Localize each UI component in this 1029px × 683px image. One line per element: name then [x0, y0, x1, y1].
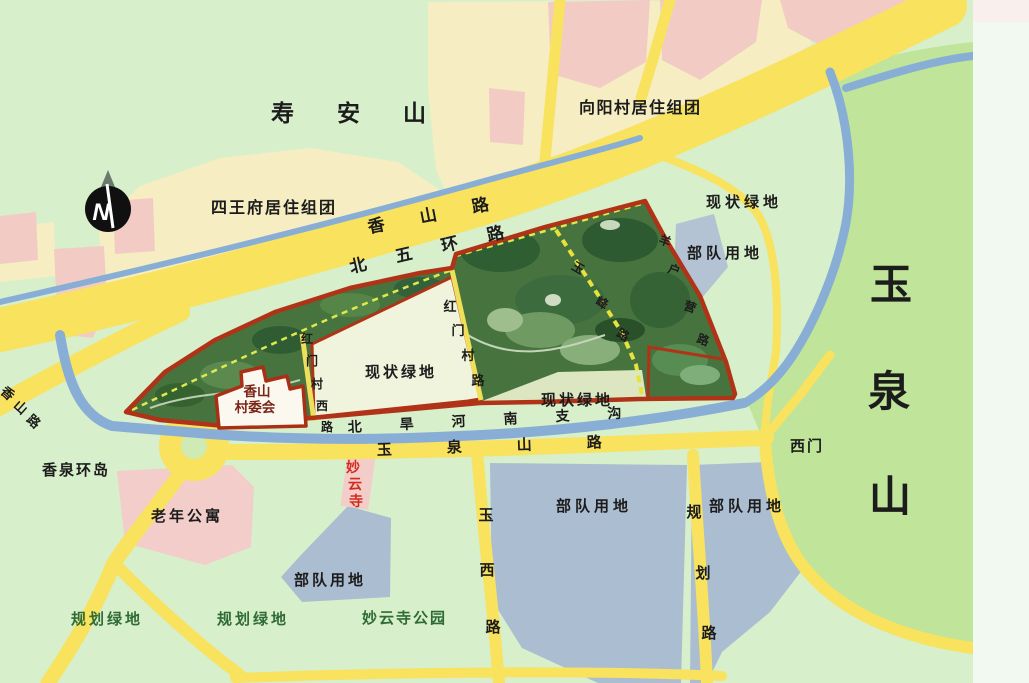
label-yuquanshan-char: 泉: [868, 368, 910, 415]
label-ximen: 西门: [790, 437, 824, 455]
label-guihua-lvdi-center: 规划绿地: [217, 610, 289, 628]
label-road-hongmencun-xilu-char: 门: [306, 353, 318, 368]
label-road-guihua-lu-char: 路: [701, 624, 717, 642]
label-road-hongmencun-xilu-char: 村: [311, 376, 323, 391]
label-road-yuxi-lu-char: 路: [485, 618, 501, 636]
planning-map: N 寿安山 玉 泉 山 四王府居住组团 向阳村居住组团 现状绿地 部队用地 现状…: [0, 0, 1029, 683]
label-budui-ne: 部队用地: [687, 244, 763, 262]
label-miaoyunsi-char: 云: [348, 476, 362, 492]
label-road-hongmencun-lu-char: 红: [443, 299, 456, 314]
label-laonian-gongyu: 老年公寓: [150, 507, 223, 525]
label-road-guihua-lu-char: 划: [695, 564, 710, 582]
right-margin-top-tint: [973, 0, 1029, 22]
label-yuquanshan-char: 玉: [870, 261, 912, 308]
road-bottom: [235, 672, 722, 678]
label-miaoyunsi-char: 妙: [346, 459, 360, 475]
right-margin: [973, 0, 1029, 683]
area-pink-patch: [489, 88, 525, 145]
label-road-yuxi-lu-char: 西: [479, 562, 494, 579]
label-xiangquan-huandao: 香泉环岛: [42, 461, 110, 479]
label-road-hongmencun-lu-char: 路: [471, 373, 485, 388]
label-road-hongmencun-xilu-char: 西: [316, 399, 328, 413]
label-miaoyunsi-char: 寺: [349, 493, 363, 509]
label-road-hongmencun-xilu-char: 路: [321, 419, 334, 434]
label-budui-south-left: 部队用地: [556, 497, 632, 515]
label-cunweihui-line1: 香山: [243, 383, 271, 399]
label-siwangfu: 四王府居住组团: [211, 198, 337, 217]
label-road-hongmencun-lu-char: 村: [461, 348, 474, 363]
label-cunweihui-line2: 村委会: [235, 399, 276, 415]
label-road-hongmencun-lu-char: 门: [451, 323, 464, 338]
label-budui-south-right: 部队用地: [709, 497, 785, 515]
label-miaoyunsi-gongyuan: 妙云寺公园: [362, 609, 447, 627]
label-guihua-lvdi-left: 规划绿地: [71, 610, 143, 628]
label-xianzhuang-ne: 现状绿地: [706, 193, 782, 211]
compass-n-label: N: [92, 199, 110, 226]
label-yuquanshan-char: 山: [869, 473, 911, 520]
area-pink-patch: [0, 212, 38, 264]
label-xiangyangcun: 向阳村居住组团: [579, 98, 702, 117]
label-budui-center: 部队用地: [294, 571, 366, 589]
label-road-guihua-lu-char: 规: [686, 504, 701, 521]
label-xianzhuang-west: 现状绿地: [365, 363, 437, 381]
label-road-hongmencun-xilu-char: 红: [301, 331, 313, 346]
label-shouanshan: 寿安山: [271, 100, 469, 126]
label-road-yuxi-lu-char: 玉: [478, 507, 493, 524]
